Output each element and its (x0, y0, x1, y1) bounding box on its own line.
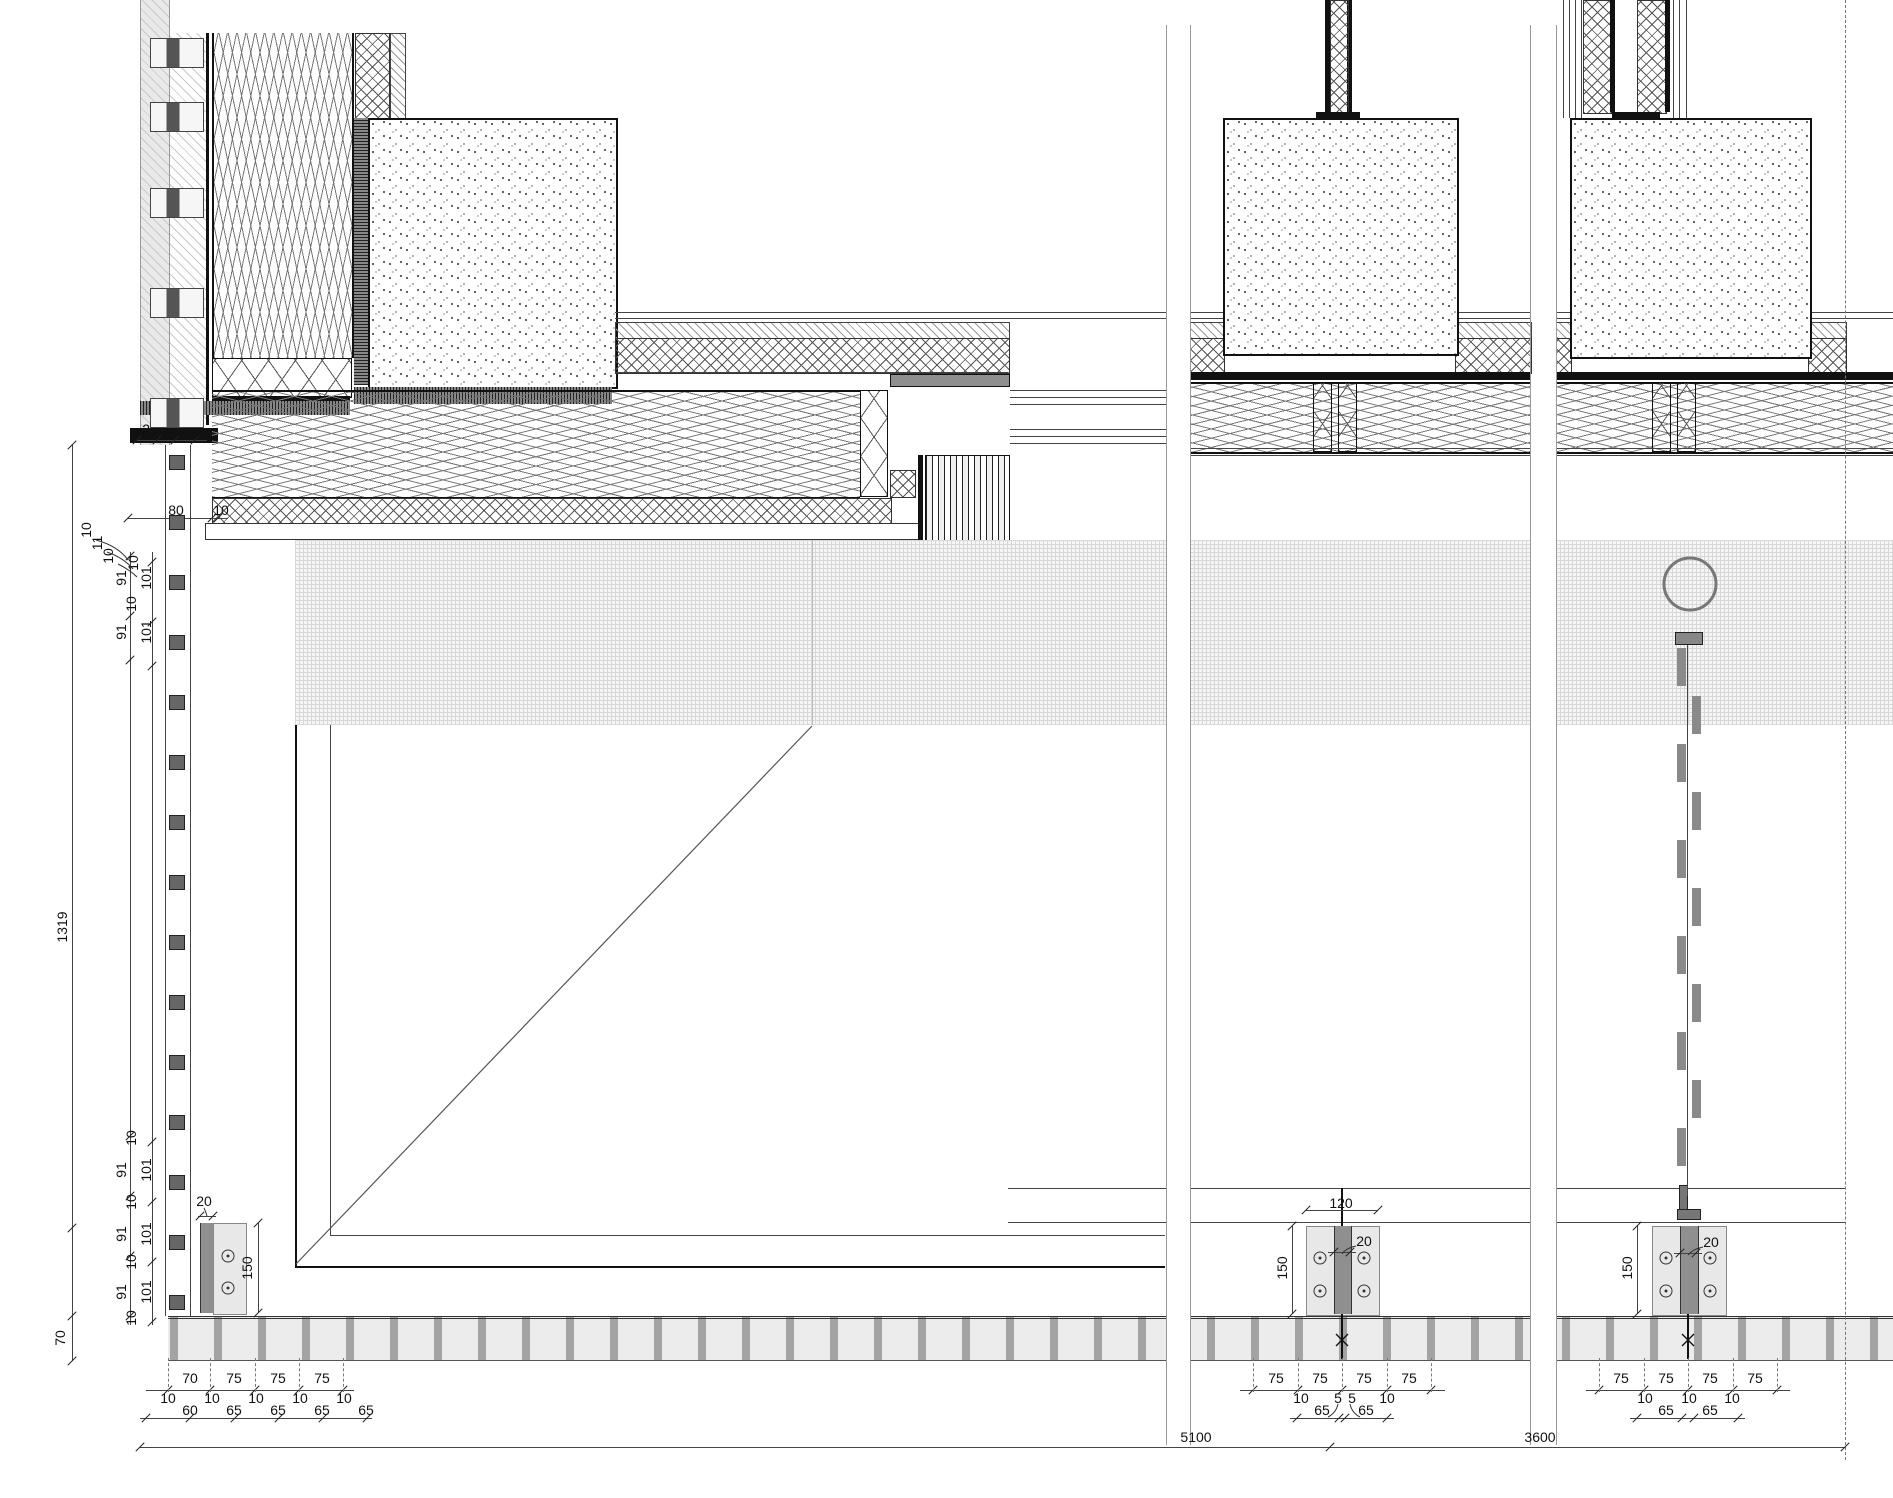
sill-line (1008, 1222, 1166, 1223)
stud-center-line (343, 1358, 344, 1392)
ceiling-joist (1652, 382, 1671, 452)
facade-clip (169, 1295, 185, 1310)
facade-clip (169, 995, 185, 1010)
wall-insulation (212, 33, 354, 358)
stud-center-line (1298, 1358, 1299, 1392)
dim-label: 10 (1724, 1391, 1740, 1405)
dim-line (140, 1418, 372, 1419)
right-bracket-anchor (1687, 1314, 1689, 1359)
dim-label: 10 (124, 1254, 138, 1270)
sill-line (1556, 1222, 1845, 1223)
dim-line (72, 445, 73, 1361)
ceiling-joist (1313, 382, 1332, 452)
window-head-gray-bar (890, 374, 1010, 387)
concrete-column-a (1223, 118, 1459, 356)
dim-label: 65 (226, 1403, 242, 1417)
deck-bar (1190, 372, 1530, 380)
dim-line (258, 1223, 259, 1313)
window-sash-diagonal (296, 726, 812, 1264)
stud-center-line (1599, 1358, 1600, 1392)
bracket-screw (1704, 1285, 1717, 1298)
ceiling-insulation-left (212, 390, 860, 499)
bracket-screw (1660, 1252, 1673, 1265)
screed-hatch-band (1190, 322, 1225, 339)
window-jamb-insulation (1637, 0, 1667, 114)
wall-anchor-bracket (150, 38, 204, 68)
break-line (1190, 25, 1191, 1445)
window-head-line (1010, 390, 1166, 391)
wall-anchor-bracket (150, 288, 204, 318)
parapet-hatch (390, 33, 406, 120)
window-frame-line (1686, 0, 1687, 118)
stud-center-line (1644, 1358, 1645, 1392)
ceiling-joist (1338, 382, 1357, 452)
facade-clip (169, 455, 185, 470)
soffit-lining (205, 523, 920, 540)
break-line (1530, 25, 1531, 1445)
rail-top-cap (1675, 632, 1703, 645)
soffit-line (1556, 448, 1893, 449)
stud-center-line (1253, 1358, 1254, 1392)
dim-label: 75 (1613, 1371, 1629, 1385)
dim-label: 65 (314, 1403, 330, 1417)
roller-blind-box (925, 455, 1010, 541)
facade-clip (169, 635, 185, 650)
ceiling-joist (860, 390, 888, 497)
screed-hatch-band (1808, 322, 1847, 339)
right-bracket-bar (1680, 1226, 1699, 1314)
window-jamb-bar (1665, 0, 1670, 112)
stud-center-line (1733, 1358, 1734, 1392)
base-strip (168, 1316, 1166, 1361)
bracket-screw (222, 1250, 235, 1263)
window-head-line (1010, 404, 1166, 405)
stud-center-line (299, 1358, 300, 1392)
bracket-screw (1358, 1252, 1371, 1265)
impact-insulation-band (1190, 338, 1225, 374)
sill-line (1190, 1222, 1530, 1223)
facade-clip (169, 815, 185, 830)
parapet-insulation (355, 33, 390, 120)
facade-clip (169, 575, 185, 590)
screed-hatch-band (1455, 322, 1532, 339)
window-frame-line (1581, 0, 1582, 118)
dim-label: 91 (114, 570, 128, 586)
grid-axis-line (1845, 0, 1846, 1460)
dim-label: 75 (1658, 1371, 1674, 1385)
deck-line (615, 372, 1008, 373)
dim-label: 65 (1658, 1403, 1674, 1417)
stud-center-line (168, 1358, 169, 1392)
bracket-screw (1314, 1252, 1327, 1265)
dim-label: 10 (124, 1194, 138, 1210)
window-frame-line (1569, 0, 1570, 118)
dim-label: 65 (1702, 1403, 1718, 1417)
sill-line (1190, 1188, 1530, 1189)
facade-strip-line (165, 445, 166, 1316)
wall-membrane-line (206, 33, 209, 425)
dim-label: 75 (1702, 1371, 1718, 1385)
dim-label: 10 (124, 596, 138, 612)
dim-label: 65 (1314, 1403, 1330, 1417)
dim-label: 150 (1620, 1256, 1634, 1279)
dim-label: 65 (270, 1403, 286, 1417)
break-line (1166, 25, 1167, 1445)
bracket-screw (1314, 1285, 1327, 1298)
base-strip (1556, 1316, 1893, 1361)
dim-label: 75 (226, 1371, 242, 1385)
facade-air-gap (170, 33, 206, 423)
dim-label: 65 (1358, 1403, 1374, 1417)
dim-label: 91 (114, 624, 128, 640)
dim-line (1637, 1226, 1638, 1314)
stud-center-line (1688, 1358, 1689, 1392)
facade-clip (169, 935, 185, 950)
window-head-line (1010, 397, 1166, 398)
sill-line (1008, 1188, 1166, 1189)
dim-label-overall: 3600 (1524, 1430, 1555, 1444)
facade-clip (169, 1235, 185, 1250)
window-frame-line (1575, 0, 1576, 118)
slab-top-line (615, 312, 1166, 313)
stud-center-line (255, 1358, 256, 1392)
facade-clip (169, 695, 185, 710)
soffit-line (1556, 455, 1893, 456)
dim-label: 91 (114, 1284, 128, 1300)
soffit-insulation-board (212, 498, 892, 524)
bracket-screw (1704, 1252, 1717, 1265)
ventilation-grille-band (295, 540, 1166, 725)
window-frame-line (1679, 0, 1680, 118)
concrete-column-b (1570, 118, 1812, 359)
stud-center-line (210, 1358, 211, 1392)
dim-label: 150 (240, 1256, 254, 1279)
bracket-screw (222, 1282, 235, 1295)
facade-clip (169, 1055, 185, 1070)
facade-clip (169, 875, 185, 890)
concrete-slab-left (368, 118, 618, 389)
dim-label: 20 (196, 1194, 212, 1208)
dim-label: 75 (1747, 1371, 1763, 1385)
construction-detail-drawing: 28 30 33 80 10 10 11 10 10 91 101 10 91 … (0, 0, 1893, 1498)
dim-label: 101 (139, 1222, 153, 1245)
glazing-line (1010, 436, 1166, 437)
deck-bar (1556, 372, 1893, 380)
stud-center-line (1777, 1358, 1778, 1392)
dim-label: 101 (139, 566, 153, 589)
facade-clip (169, 1115, 185, 1130)
dim-label: 65 (358, 1403, 374, 1417)
ceiling-insulation (1190, 382, 1530, 454)
ventilation-grille-band (1556, 540, 1893, 725)
dim-label-overall: 5100 (1180, 1430, 1211, 1444)
ceiling-joist (1677, 382, 1696, 452)
dim-label: 75 (1312, 1371, 1328, 1385)
dim-line (1630, 1418, 1745, 1419)
facade-clip (169, 515, 185, 530)
impact-insulation-band (615, 338, 1010, 374)
dim-line (1292, 1226, 1293, 1314)
ceiling-insulation (1556, 382, 1893, 454)
dim-label: 10 (101, 548, 115, 564)
screed-hatch-band (615, 322, 1010, 339)
window-frame-inner (330, 725, 331, 1235)
facade-clip (169, 1175, 185, 1190)
head-insulation-block (890, 470, 916, 498)
bracket-screw (1660, 1285, 1673, 1298)
wall-anchor-bracket (150, 102, 204, 132)
bracket-screw (1358, 1285, 1371, 1298)
window-jamb-bar (1610, 0, 1615, 112)
dim-label: 20 (1703, 1235, 1719, 1249)
middle-bracket-anchor (1341, 1314, 1343, 1359)
wall-anchor-bracket (150, 188, 204, 218)
wall-anchor-bracket (150, 398, 204, 428)
dim-line-overall (140, 1447, 1845, 1448)
window-jamb-insulation (1583, 0, 1612, 114)
dim-label: 20 (1356, 1234, 1372, 1248)
dim-label: 75 (270, 1371, 286, 1385)
dim-label: 101 (139, 1280, 153, 1303)
dim-label: 75 (1356, 1371, 1372, 1385)
dim-label: 75 (1268, 1371, 1284, 1385)
dim-label: 75 (314, 1371, 330, 1385)
stud-center-line (1342, 1358, 1343, 1392)
middle-bracket-bar (1334, 1226, 1352, 1314)
facade-strip-line (190, 445, 191, 1316)
window-frame-line (1563, 0, 1564, 118)
dim-label: 150 (1275, 1256, 1289, 1279)
rail-dash-right (1692, 696, 1701, 1176)
impact-insulation-band (1808, 338, 1847, 374)
break-line (1556, 25, 1557, 1445)
slab-edge-strip (354, 118, 368, 385)
rail-dash-left (1677, 648, 1686, 1176)
base-strip (1190, 1316, 1530, 1361)
stud-center-line (1431, 1358, 1432, 1392)
stud-center-line (1387, 1358, 1388, 1392)
slab-top-line (615, 318, 1166, 319)
soffit-line (1190, 455, 1530, 456)
window-frame-bottom-inner (330, 1235, 1165, 1236)
sill-line (1556, 1188, 1845, 1189)
dim-label: 91 (114, 1226, 128, 1242)
grille-joint (812, 540, 813, 725)
soffit-line (1190, 448, 1530, 449)
mullion-core (1330, 0, 1349, 114)
dim-label-overall-vertical: 1319 (55, 911, 69, 942)
rail-foot (1677, 1209, 1701, 1220)
glazing-line (1010, 429, 1166, 430)
window-frame-line (1673, 0, 1674, 118)
impact-insulation-band (1455, 338, 1532, 374)
window-frame-bottom (295, 1266, 1165, 1268)
dim-label: 120 (1329, 1196, 1352, 1210)
window-sill-bar (1612, 112, 1660, 120)
dim-label: 60 (182, 1403, 198, 1417)
rail-center-line (1687, 640, 1688, 1196)
facade-clip (169, 755, 185, 770)
dim-label: 5 (1348, 1391, 1356, 1405)
blind-guide-bar (918, 455, 923, 540)
mullion-sill (1316, 112, 1360, 120)
dim-label: 70 (182, 1371, 198, 1385)
dim-label: 70 (53, 1330, 67, 1346)
dim-line (152, 552, 153, 1325)
dim-label: 91 (114, 1162, 128, 1178)
glazing-line (1010, 443, 1166, 444)
window-frame-left (295, 725, 297, 1266)
dim-label: 101 (139, 1158, 153, 1181)
ventilation-grille-band (1190, 540, 1530, 725)
dim-label: 75 (1401, 1371, 1417, 1385)
